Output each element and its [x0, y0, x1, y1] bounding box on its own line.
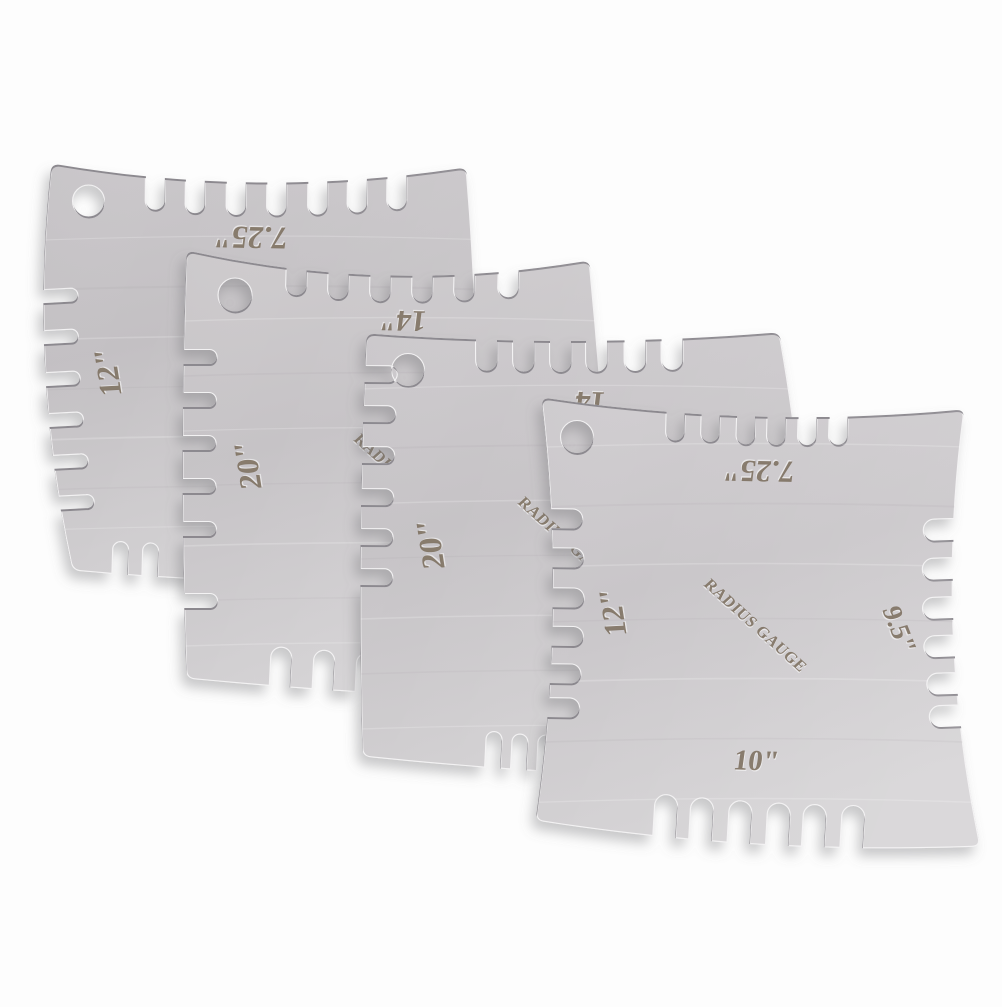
- svg-text:20": 20": [226, 441, 269, 490]
- svg-text:12": 12": [591, 588, 634, 637]
- svg-text:7.25": 7.25": [212, 219, 290, 256]
- svg-text:7.25": 7.25": [721, 453, 797, 489]
- svg-text:12": 12": [86, 348, 129, 397]
- svg-text:10": 10": [731, 744, 781, 777]
- svg-text:20": 20": [408, 519, 452, 570]
- svg-text:14": 14": [377, 304, 428, 339]
